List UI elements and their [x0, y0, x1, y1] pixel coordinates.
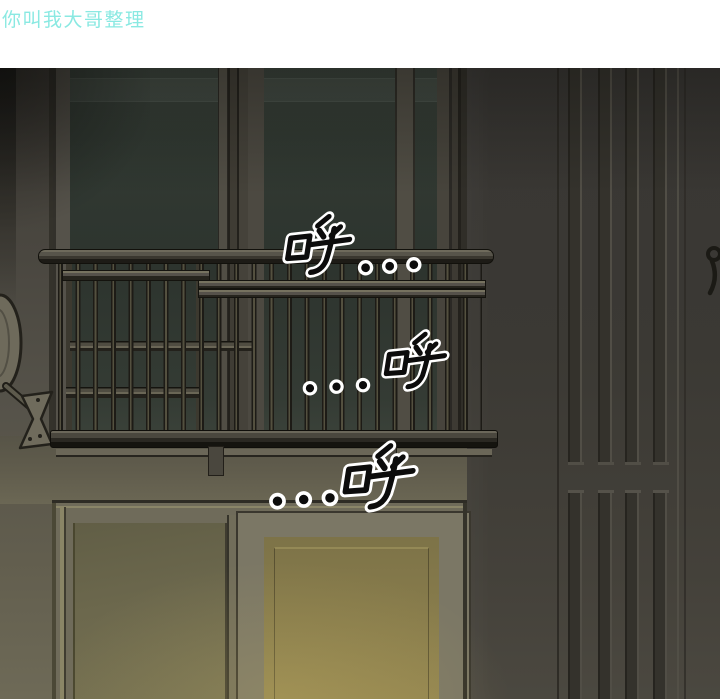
- sliding-door-panel: [236, 511, 471, 699]
- door-hook-icon: [699, 244, 720, 296]
- comic-panel: 呼... ...呼 ...呼: [0, 68, 720, 699]
- lower-window-right-pane: [264, 537, 439, 699]
- lower-window: [52, 500, 467, 699]
- comic-page: 你叫我大哥整理: [0, 0, 720, 699]
- sfx-hu-3: [270, 440, 430, 522]
- railing-mid-rail: [62, 270, 210, 281]
- window-frame-edge: [463, 503, 467, 699]
- door-groove: [653, 68, 669, 465]
- door-edge: [557, 68, 559, 699]
- inner-frame-line: [274, 547, 429, 699]
- door-groove: [653, 490, 669, 699]
- metal-door-wall: [467, 68, 720, 699]
- door-edge: [684, 68, 686, 699]
- railing-mid-rail: [198, 289, 486, 298]
- door-groove: [625, 68, 641, 465]
- left-wall-shadow: [0, 68, 16, 308]
- credit-text: 你叫我大哥整理: [2, 5, 146, 32]
- window-frame-strip: [60, 507, 64, 699]
- railing-foot: [208, 446, 224, 476]
- door-groove: [568, 490, 584, 699]
- lower-window-left-pane: [73, 523, 227, 699]
- door-groove: [625, 490, 641, 699]
- door-edge: [677, 68, 679, 699]
- page-header: 你叫我大哥整理: [0, 0, 720, 68]
- sfx-hu-2: [302, 327, 463, 408]
- window-frame-edge: [52, 503, 56, 699]
- door-groove: [598, 490, 614, 699]
- door-groove: [598, 68, 614, 465]
- sfx-hu-1: [282, 207, 445, 287]
- door-groove: [568, 68, 584, 465]
